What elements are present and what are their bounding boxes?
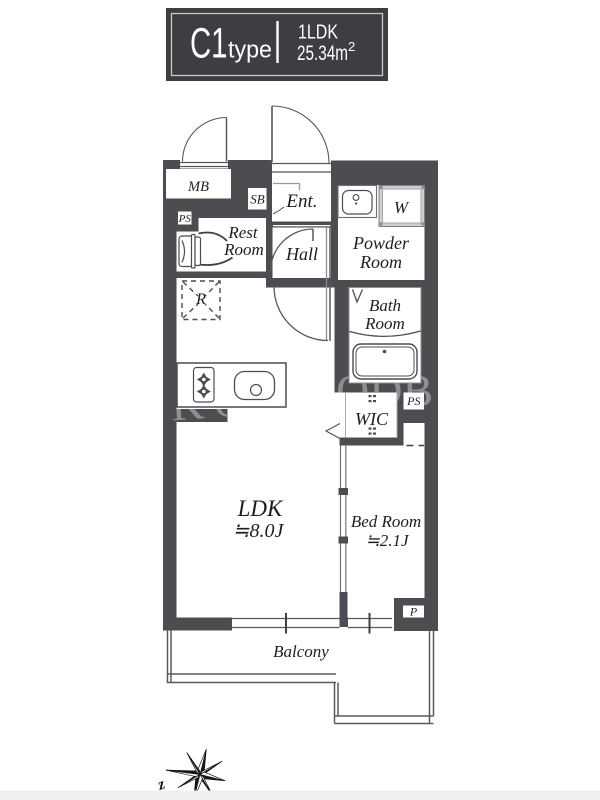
svg-text:Powder: Powder	[352, 233, 410, 253]
svg-text:LDK: LDK	[237, 496, 284, 521]
svg-text:MB: MB	[187, 179, 209, 195]
svg-text:C1: C1	[190, 20, 228, 68]
svg-text:≒8.0J: ≒8.0J	[233, 520, 285, 542]
svg-text:PS: PS	[406, 394, 420, 408]
svg-text:W: W	[394, 198, 410, 217]
svg-text:Balcony: Balcony	[273, 642, 329, 661]
svg-text:Bed Room: Bed Room	[351, 512, 421, 531]
svg-text:Room: Room	[359, 252, 402, 272]
svg-text:WIC: WIC	[355, 409, 389, 429]
svg-text:25.34m: 25.34m	[297, 41, 348, 65]
svg-text:P: P	[409, 605, 418, 619]
svg-text:2: 2	[348, 39, 355, 54]
svg-text:SB: SB	[250, 192, 265, 207]
svg-text:type: type	[228, 37, 272, 64]
svg-text:Bath: Bath	[369, 296, 401, 315]
svg-text:PS: PS	[178, 213, 192, 225]
svg-text:Hall: Hall	[285, 244, 318, 264]
svg-text:≒2.1J: ≒2.1J	[365, 531, 410, 550]
svg-text:Room: Room	[364, 314, 405, 333]
svg-text:Ent.: Ent.	[285, 191, 317, 212]
svg-text:Room: Room	[223, 240, 264, 259]
svg-text:R: R	[195, 291, 206, 308]
